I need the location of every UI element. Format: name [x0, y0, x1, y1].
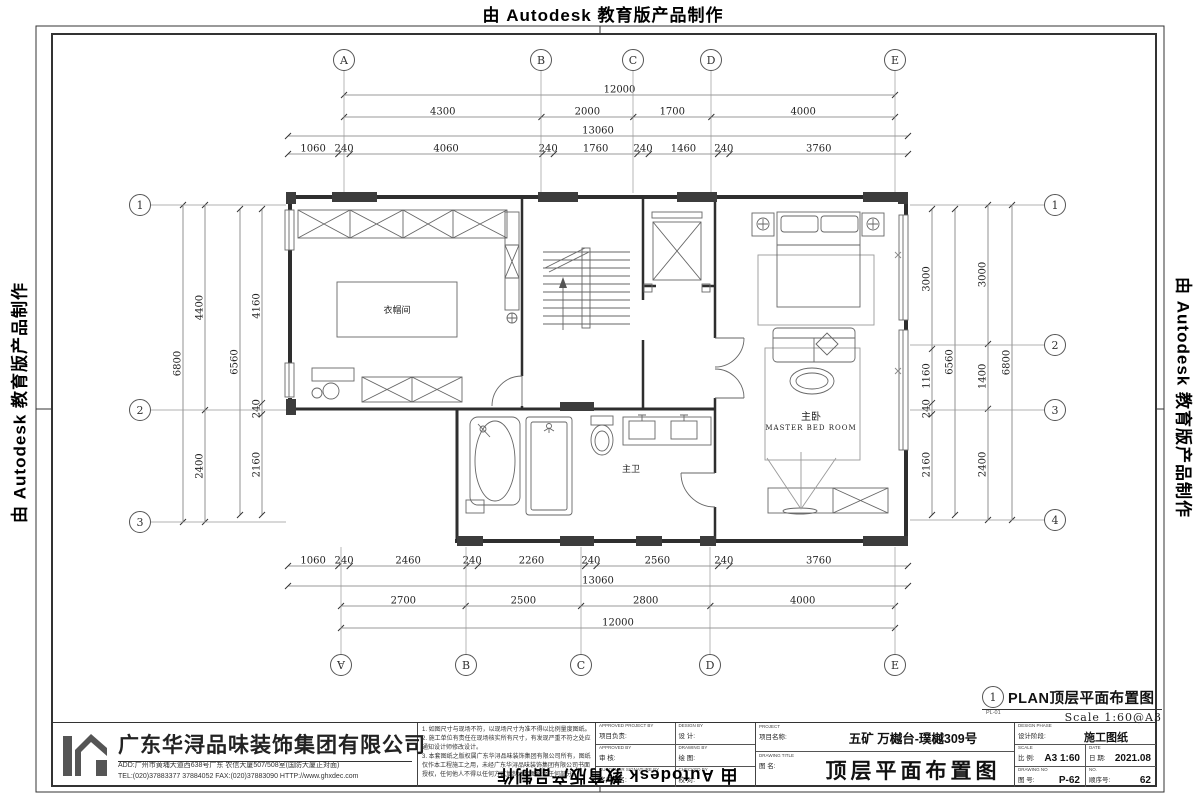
dim-or-grid-label: B	[537, 54, 545, 67]
dim-or-grid-label: 1460	[671, 144, 696, 155]
plan-label-block: 1 PLAN顶层平面布置图 PL-01 Scale 1:60@A3	[982, 686, 1162, 724]
door-arc-cloakroom	[492, 376, 522, 406]
dim-or-grid-label: 2	[1052, 339, 1059, 352]
sign-cell-drawing: DRAWING BY绘 图:	[676, 745, 756, 767]
stair-up-arrow	[559, 277, 567, 288]
coffee-table	[790, 368, 834, 394]
label-master-bed-cn: 主卧	[801, 410, 821, 423]
shower-head	[547, 424, 552, 429]
sign-cell-checked: CHECKED BY校 对:	[676, 767, 756, 787]
company-address: ADD:广州市黄埔大道西638号广东 农信大厦507/508室(国防大厦正对面)…	[118, 761, 414, 783]
dim-or-grid-label: 4300	[430, 107, 455, 118]
dim-or-grid-label: 3000	[922, 266, 933, 291]
master-bedroom-furniture	[715, 212, 908, 514]
drawing-no-value: P-62	[1059, 775, 1080, 786]
toilet-tank	[591, 416, 613, 425]
dim-or-grid-label: E	[891, 659, 899, 672]
sheet-no-value: 62	[1140, 775, 1151, 786]
drawing-title-row: DRAWING TITLE图 名: 顶层平面布置图	[756, 752, 1014, 787]
dim-or-grid-label: 1	[137, 199, 144, 212]
sink-1	[629, 421, 655, 439]
chair	[323, 383, 339, 399]
drawing-title-value: 顶层平面布置图	[812, 752, 1014, 787]
dim-or-grid-label: A	[336, 658, 346, 671]
note-2: 2. 施工单位有责任在现场核实所有尺寸，有发现严重不符之处应通知设计师修改设计。	[422, 735, 591, 753]
signature-grid: APPROVED PROJECT BY项目负责: DESIGN BY设 计: A…	[596, 723, 756, 787]
drawing-info-block: DESIGN PHASE设计阶段: 施工图纸 SCALE比 例: A3 1:60…	[1015, 723, 1156, 787]
scale-cell: SCALE比 例: A3 1:60	[1015, 745, 1086, 766]
note-3: 3. 本套图纸之版权属广东华浔品味装饰集团有限公司所有，图纸仅作本工程施工之用，…	[422, 753, 591, 780]
dim-or-grid-label: 6560	[230, 349, 241, 374]
window-right-1	[899, 215, 908, 320]
dim-or-grid-label: 4	[1052, 514, 1059, 527]
dim-or-grid-label: C	[629, 54, 637, 67]
dim-or-grid-label: 6800	[173, 351, 184, 376]
rug-1	[758, 255, 874, 325]
dim-or-grid-label: 4000	[790, 596, 815, 607]
plan-number-bubble: 1	[982, 686, 1004, 708]
dim-or-grid-label: 2	[137, 404, 144, 417]
dim-or-grid-label: 12000	[602, 618, 634, 629]
dim-or-grid-label: 1060	[300, 556, 325, 567]
project-name-value: 五矿 万樾台-璞樾309号	[812, 723, 1014, 751]
double-door-arcs	[715, 338, 744, 398]
dim-or-grid-label: 2160	[252, 452, 263, 477]
elevator	[644, 212, 710, 292]
dim-or-grid-label: 13060	[582, 576, 614, 587]
title-block: 广东华浔品味装饰集团有限公司 ADD:广州市黄埔大道西638号广东 农信大厦50…	[52, 722, 1156, 787]
bath-step	[466, 500, 484, 513]
dim-or-grid-label: B	[462, 659, 470, 672]
dim-or-grid-label: D	[707, 54, 716, 67]
staircase	[507, 248, 630, 330]
dim-or-grid-label: D	[706, 659, 715, 672]
floor-plan-canvas: 1200043002000170040001306010602404060240…	[0, 0, 1200, 800]
dim-or-grid-label: 2260	[519, 556, 544, 567]
label-master-bath: 主卫	[622, 463, 640, 474]
scale-value: A3 1:60	[1044, 753, 1080, 764]
sign-cell-design: DESIGN BY设 计:	[676, 723, 756, 745]
bed	[777, 212, 860, 307]
dim-or-grid-label: 1060	[300, 144, 325, 155]
sign-cell-customer: CUSTOMER SIGNATURE BY客户签名:	[596, 767, 676, 787]
dim-or-grid-label: 6560	[945, 349, 956, 374]
floor-plan: 衣帽间 主卫 主卧 MASTER BED ROOM	[285, 192, 908, 546]
date-value: 2021.08	[1115, 753, 1151, 764]
company-contact-line: TEL:(020)37883377 37884052 FAX:(020)3788…	[118, 772, 414, 783]
bathtub	[470, 417, 520, 505]
company-address-line: ADD:广州市黄埔大道西638号广东 农信大厦507/508室(国防大厦正对面)	[118, 761, 414, 772]
design-phase-cell: DESIGN PHASE设计阶段: 施工图纸	[1015, 723, 1156, 744]
window-right-2	[899, 330, 908, 450]
label-cloakroom: 衣帽间	[383, 304, 410, 315]
dim-or-grid-label: 2500	[511, 596, 536, 607]
sign-cell-project-lead: APPROVED PROJECT BY项目负责:	[596, 723, 676, 745]
dim-or-grid-label: 3	[137, 516, 144, 529]
window-left-1	[285, 210, 294, 250]
dim-or-grid-label: 2560	[645, 556, 670, 567]
dim-or-grid-label: A	[339, 54, 349, 67]
sheet-no-cell: NO.顺序号: 62	[1086, 767, 1156, 787]
dim-or-grid-label: 2160	[922, 452, 933, 477]
date-cell: DATE日 期: 2021.08	[1086, 745, 1156, 766]
company-block: 广东华浔品味装饰集团有限公司 ADD:广州市黄埔大道西638号广东 农信大厦50…	[52, 723, 418, 787]
dim-or-grid-label: 6800	[1002, 350, 1013, 375]
window-left-2	[285, 363, 294, 397]
project-block: PROJECT项目名称: 五矿 万樾台-璞樾309号 DRAWING TITLE…	[756, 723, 1015, 787]
dim-or-grid-label: 13060	[582, 126, 614, 137]
dim-or-grid-label: 1	[1052, 199, 1059, 212]
label-master-bed-en: MASTER BED ROOM	[765, 424, 856, 432]
pillow-1	[781, 216, 818, 232]
rug-2	[765, 348, 860, 460]
dim-or-grid-label: 4160	[252, 293, 263, 318]
dim-or-grid-label: 1700	[660, 107, 685, 118]
dim-or-grid-label: 2700	[391, 596, 416, 607]
dim-or-grid-label: 2000	[575, 107, 600, 118]
drawing-sheet: 由 Autodesk 教育版产品制作 由 Autodesk 教育版产品制作 由 …	[0, 0, 1200, 800]
pillow-2	[821, 216, 858, 232]
project-name-row: PROJECT项目名称: 五矿 万樾台-璞樾309号	[756, 723, 1014, 752]
dim-or-grid-label: 2400	[195, 453, 206, 478]
dim-or-grid-label: 3760	[806, 556, 831, 567]
dresser	[312, 368, 354, 381]
dim-or-grid-label: 1400	[978, 364, 989, 389]
sign-cell-approved: APPROVED BY审 核:	[596, 745, 676, 767]
company-logo	[62, 732, 108, 778]
dim-or-grid-label: 1760	[583, 144, 608, 155]
dim-or-grid-label: C	[577, 659, 585, 672]
dim-or-grid-label: 4000	[790, 107, 815, 118]
dim-or-grid-label: 2800	[633, 596, 658, 607]
company-name: 广东华浔品味装饰集团有限公司	[118, 729, 412, 762]
dim-or-grid-label: 2400	[978, 452, 989, 477]
drawing-no-cell: DRAWING No图 号: P-62	[1015, 767, 1086, 787]
dim-or-grid-label: 4060	[433, 144, 458, 155]
dim-or-grid-label: 12000	[604, 85, 636, 96]
note-1: 1. 如图尺寸与现场不符，以现场尺寸为准不得以比例量度图纸。	[422, 726, 591, 735]
toilet	[591, 425, 613, 455]
dim-or-grid-label: 1160	[922, 363, 933, 388]
design-phase-value: 施工图纸	[1084, 729, 1128, 745]
notes-block: 1. 如图尺寸与现场不符，以现场尺寸为准不得以比例量度图纸。 2. 施工单位有责…	[418, 723, 596, 787]
dimensions-and-grid: 1200043002000170040001306010602404060240…	[130, 50, 1066, 676]
plan-title: PLAN顶层平面布置图	[1008, 687, 1154, 708]
dim-or-grid-label: E	[891, 54, 899, 67]
dim-or-grid-label: 3	[1052, 404, 1059, 417]
dim-or-grid-label: 3000	[978, 262, 989, 287]
dim-or-grid-label: 3760	[806, 144, 831, 155]
master-bath-fixtures	[466, 415, 715, 515]
door-arc-bath	[681, 473, 715, 507]
dim-or-grid-label: 4400	[195, 295, 206, 320]
dim-or-grid-label: 2460	[395, 556, 420, 567]
sofa-cushion	[816, 333, 838, 355]
sink-2	[671, 421, 697, 439]
